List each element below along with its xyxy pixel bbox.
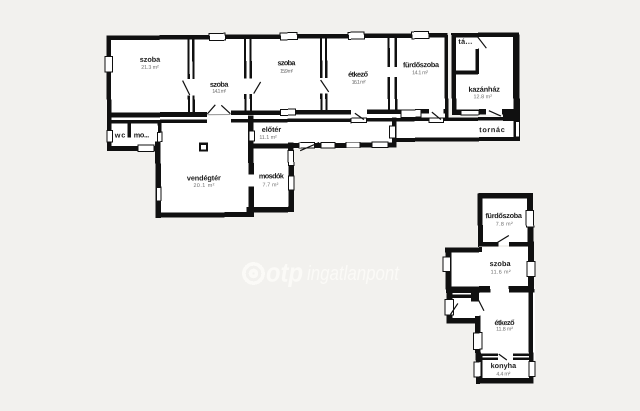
- svg-text:7.8 m²: 7.8 m²: [496, 221, 513, 227]
- svg-text:mo...: mo...: [134, 130, 150, 139]
- svg-text:otp: otp: [266, 258, 303, 288]
- svg-text:fürdőszoba: fürdőszoba: [403, 60, 440, 69]
- svg-text:tá...: tá...: [458, 37, 472, 46]
- svg-text:20.1 m²: 20.1 m²: [193, 183, 214, 189]
- svg-text:szoba: szoba: [210, 80, 230, 89]
- svg-text:wc: wc: [114, 131, 126, 140]
- svg-text:szoba: szoba: [277, 58, 296, 67]
- svg-text:16.1 m²: 16.1 m²: [352, 80, 366, 86]
- svg-text:21.3 m²: 21.3 m²: [141, 65, 159, 71]
- svg-text:12.8 m²: 12.8 m²: [473, 94, 492, 100]
- svg-text:11.1 m²: 11.1 m²: [259, 135, 277, 141]
- svg-text:vendégtér: vendégtér: [187, 173, 221, 182]
- svg-text:szoba: szoba: [490, 259, 512, 268]
- svg-text:11.8 m²: 11.8 m²: [496, 326, 513, 332]
- svg-text:15.9 m²: 15.9 m²: [280, 69, 293, 75]
- svg-text:11.6 m²: 11.6 m²: [491, 270, 511, 276]
- svg-text:14.1 m²: 14.1 m²: [412, 70, 428, 76]
- svg-text:kazánház: kazánház: [468, 85, 500, 94]
- svg-text:14.1 m²: 14.1 m²: [212, 89, 226, 95]
- svg-text:fürdőszoba: fürdőszoba: [485, 211, 523, 220]
- svg-text:mosdók: mosdók: [259, 171, 285, 180]
- svg-text:étkező: étkező: [348, 70, 369, 79]
- svg-text:7.7 m²: 7.7 m²: [262, 182, 278, 188]
- svg-text:konyha: konyha: [491, 361, 518, 370]
- svg-text:tornác: tornác: [479, 125, 505, 134]
- svg-text:4.4 m²: 4.4 m²: [496, 372, 510, 378]
- svg-text:ingatlanpont: ingatlanpont: [307, 263, 400, 285]
- svg-text:előtér: előtér: [262, 125, 282, 134]
- svg-text:szoba: szoba: [140, 55, 162, 64]
